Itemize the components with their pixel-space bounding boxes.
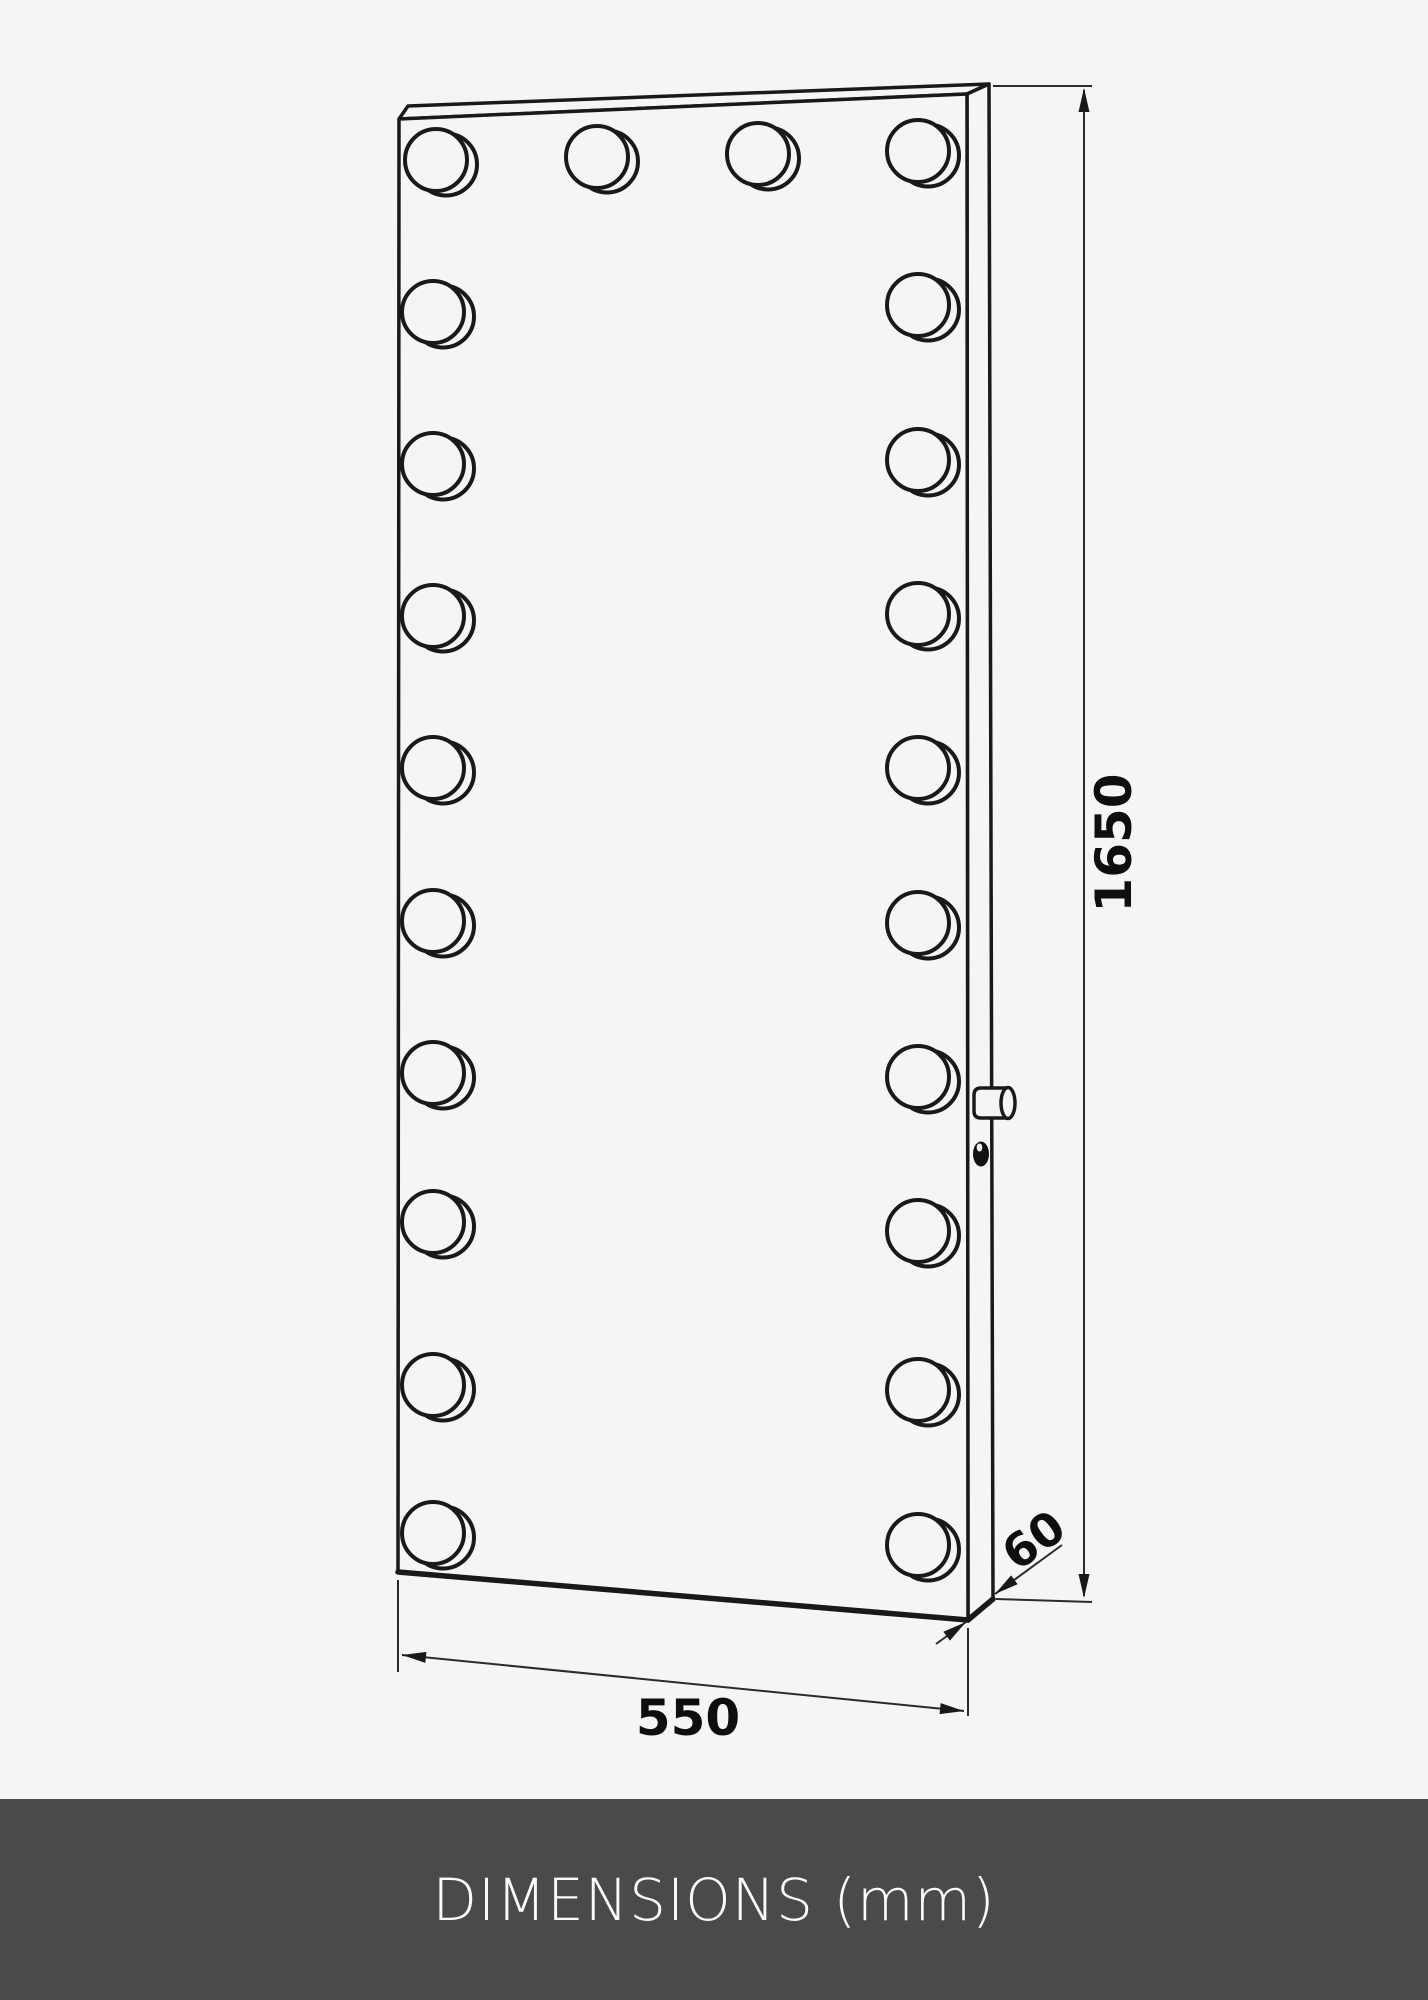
light-bulb xyxy=(887,583,959,650)
light-bulb xyxy=(402,1042,474,1109)
light-bulb xyxy=(405,129,477,196)
light-bulb xyxy=(887,274,959,341)
height-ext-line-bottom xyxy=(996,1599,1092,1602)
light-bulb xyxy=(887,737,959,804)
light-bulb xyxy=(887,1200,959,1267)
footer-bar: DIMENSIONS (mm) xyxy=(0,1799,1428,2000)
light-bulb xyxy=(727,123,799,190)
depth-dimension-label: 60 xyxy=(992,1499,1076,1580)
height-arrow-top xyxy=(1079,88,1090,112)
mirror-dimension-diagram: 550 1650 60 xyxy=(0,0,1428,2000)
light-bulb xyxy=(887,429,959,496)
light-bulb xyxy=(402,1354,474,1421)
light-bulb xyxy=(402,1191,474,1258)
sensor-dot-highlight xyxy=(977,1144,983,1152)
light-bulb xyxy=(402,433,474,500)
height-arrow-bottom xyxy=(1079,1574,1090,1598)
mirror-front-face xyxy=(398,94,968,1620)
light-bulb xyxy=(402,890,474,957)
light-bulb xyxy=(566,126,638,193)
diagram-page: 550 1650 60 DIMENSIONS (mm) xyxy=(0,0,1428,2000)
light-bulb xyxy=(402,585,474,652)
light-bulb xyxy=(887,1514,959,1581)
light-bulb xyxy=(887,1359,959,1426)
height-dimension xyxy=(993,86,1092,1602)
sensor-dot xyxy=(973,1142,989,1167)
power-knob-cap xyxy=(1001,1088,1015,1119)
depth-arrow-upper xyxy=(992,1575,1018,1598)
footer-title: DIMENSIONS (mm) xyxy=(432,1866,995,1934)
light-bulb xyxy=(402,281,474,348)
light-bulb xyxy=(402,1502,474,1569)
mirror-side-face xyxy=(967,84,993,1620)
light-bulb xyxy=(887,120,959,187)
width-dimension-label: 550 xyxy=(636,1689,740,1747)
light-bulb xyxy=(402,737,474,804)
light-bulb xyxy=(887,892,959,959)
height-dimension-label: 1650 xyxy=(1085,773,1143,912)
power-knob xyxy=(974,1088,1015,1119)
light-bulb xyxy=(887,1046,959,1113)
